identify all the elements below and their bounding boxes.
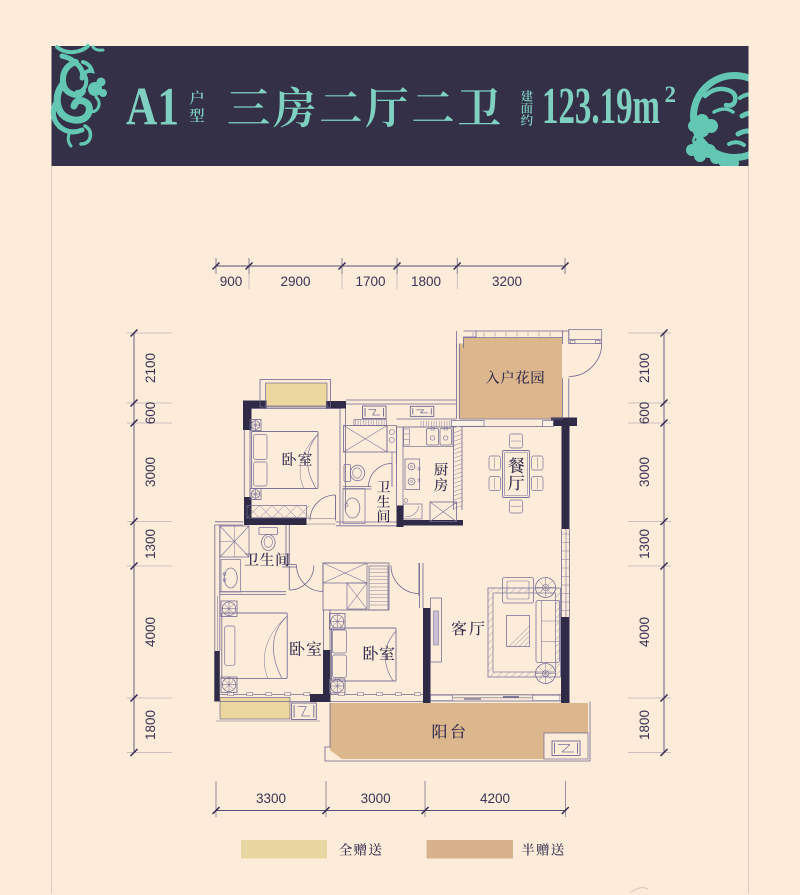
svg-text:3000: 3000	[637, 457, 652, 487]
svg-text:4000: 4000	[143, 617, 158, 647]
svg-text:2: 2	[665, 82, 677, 107]
svg-text:4000: 4000	[637, 617, 652, 647]
svg-text:1300: 1300	[637, 529, 652, 559]
svg-text:900: 900	[220, 274, 243, 289]
svg-text:1800: 1800	[411, 274, 441, 289]
svg-text:2900: 2900	[280, 274, 310, 289]
svg-text:600: 600	[143, 402, 158, 425]
svg-text:3000: 3000	[143, 457, 158, 487]
svg-text:123.19m: 123.19m	[542, 78, 660, 135]
svg-text:3000: 3000	[361, 791, 391, 806]
svg-text:3200: 3200	[492, 274, 522, 289]
svg-text:2100: 2100	[637, 353, 652, 383]
svg-text:3300: 3300	[256, 791, 286, 806]
svg-text:1700: 1700	[355, 274, 385, 289]
svg-text:4200: 4200	[480, 791, 510, 806]
svg-text:A1: A1	[126, 77, 179, 137]
svg-text:600: 600	[637, 402, 652, 425]
svg-text:1800: 1800	[637, 710, 652, 740]
svg-text:1800: 1800	[143, 710, 158, 740]
svg-text:1300: 1300	[143, 529, 158, 559]
svg-text:2100: 2100	[143, 353, 158, 383]
